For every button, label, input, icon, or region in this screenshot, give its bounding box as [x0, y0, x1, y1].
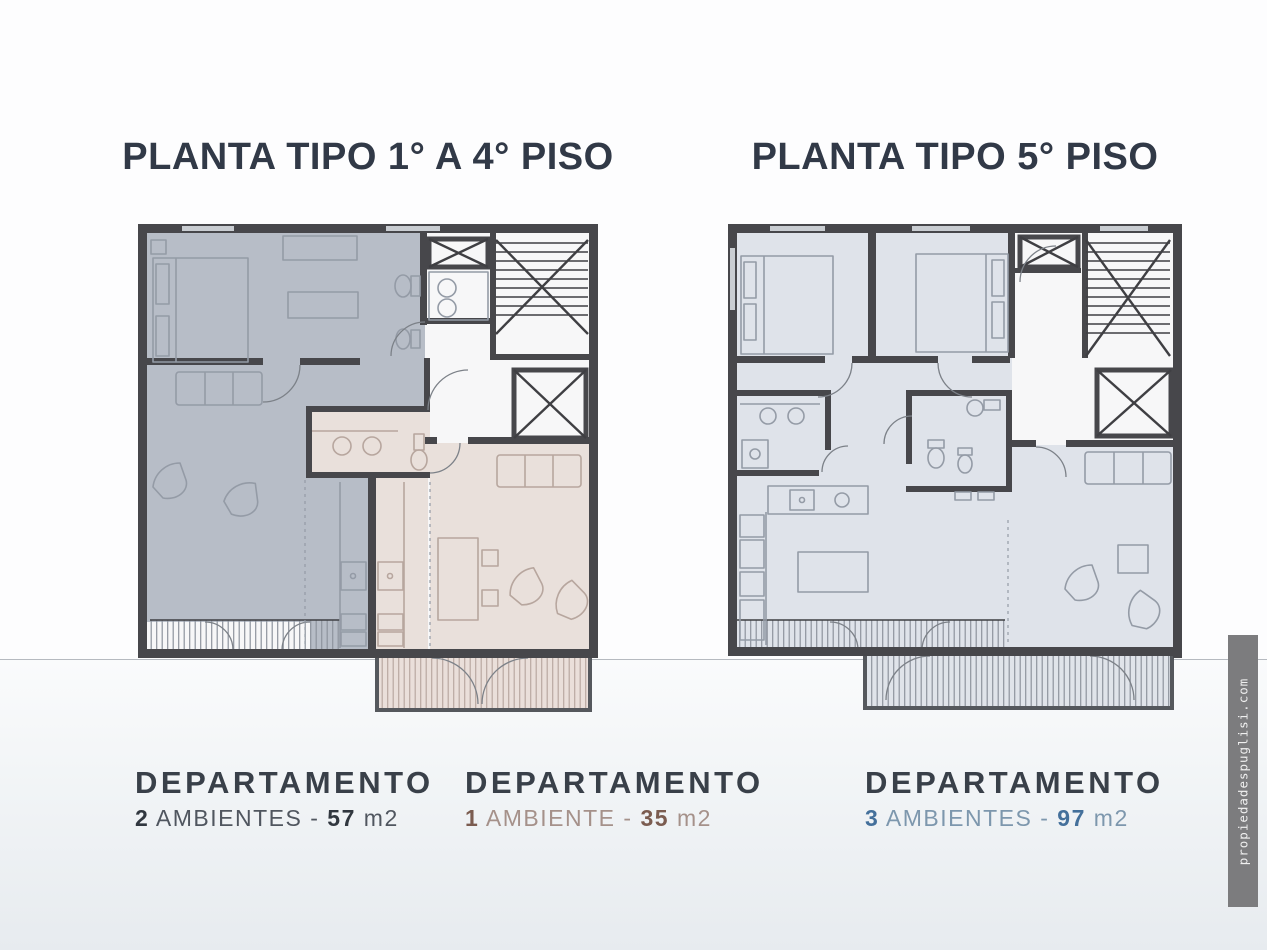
window [386, 226, 440, 231]
unit-area: 97 [1057, 805, 1086, 831]
unit-separator: - [623, 805, 632, 831]
unit-specs: 2 AMBIENTES - 57 m2 [135, 805, 435, 832]
unit-name: DEPARTAMENTO [865, 765, 1165, 801]
balcony-icon [865, 654, 1172, 708]
unit-rooms: AMBIENTES [156, 805, 302, 831]
balcony-icon [737, 620, 1005, 650]
unit-area-unit: m2 [677, 805, 712, 831]
unit-name: DEPARTAMENTO [465, 765, 765, 801]
watermark-text: propiedadespuglisi.com [1236, 677, 1251, 865]
balcony-icon [150, 620, 340, 650]
unit-area: 35 [640, 805, 669, 831]
unit-rooms: AMBIENTE [486, 805, 616, 831]
unit-area-unit: m2 [364, 805, 399, 831]
window [912, 226, 970, 231]
window [182, 226, 234, 231]
unit-label-2-ambientes: DEPARTAMENTO 2 AMBIENTES - 57 m2 [135, 765, 435, 832]
unit-label-1-ambiente: DEPARTAMENTO 1 AMBIENTE - 35 m2 [465, 765, 765, 832]
floorplan-sheet: PLANTA TIPO 1° A 4° PISO PLANTA TIPO 5° … [0, 0, 1267, 950]
unit-count: 2 [135, 805, 149, 831]
balcony-icon [377, 654, 590, 710]
window [730, 248, 735, 310]
unit-label-3-ambientes: DEPARTAMENTO 3 AMBIENTES - 97 m2 [865, 765, 1165, 832]
unit-rooms: AMBIENTES [886, 805, 1032, 831]
window [1100, 226, 1148, 231]
unit-count: 3 [865, 805, 879, 831]
watermark: propiedadespuglisi.com [1228, 635, 1258, 907]
unit-specs: 3 AMBIENTES - 97 m2 [865, 805, 1165, 832]
unit-specs: 1 AMBIENTE - 35 m2 [465, 805, 765, 832]
unit-area-unit: m2 [1094, 805, 1129, 831]
unit-separator: - [1040, 805, 1049, 831]
floorplan-5-piso [718, 214, 1193, 744]
unit-separator: - [310, 805, 319, 831]
plan-title-left: PLANTA TIPO 1° A 4° PISO [118, 136, 618, 179]
plan-title-right: PLANTA TIPO 5° PISO [705, 136, 1205, 179]
unit-count: 1 [465, 805, 479, 831]
unit-name: DEPARTAMENTO [135, 765, 435, 801]
window [770, 226, 825, 231]
floorplan-1-4-piso [130, 215, 608, 720]
unit-area: 57 [327, 805, 356, 831]
